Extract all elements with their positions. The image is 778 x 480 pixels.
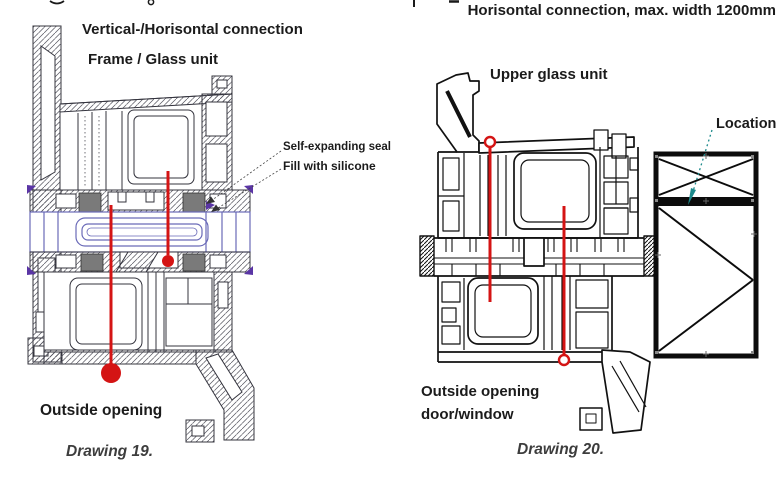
seal-block-bottom-left (81, 254, 103, 271)
clipped-text-fragments (50, 0, 459, 7)
outside-opening-door-label-line1: Outside opening (421, 384, 539, 400)
drawing20-caption: Drawing 20. (517, 442, 604, 458)
seal-block-bottom-right (183, 254, 205, 271)
band-end-cap-left (420, 236, 434, 276)
red-circle-bottom (559, 355, 569, 365)
outside-opening-label: Outside opening (40, 403, 162, 419)
red-circle-top (485, 137, 495, 147)
outside-opening-door-label-line2: door/window (421, 407, 513, 423)
frame-glass-label: Frame / Glass unit (88, 52, 218, 68)
upper-glass-label: Upper glass unit (490, 67, 608, 83)
page-canvas: Horisontal connection, max. width 1200mm… (0, 0, 778, 480)
seal-block-top-left (79, 193, 101, 212)
glass-unit-band (30, 212, 250, 252)
drawing-20-section (420, 73, 658, 433)
drawing19-caption: Drawing 19. (66, 444, 153, 460)
drawing19-title: Vertical-/Horisontal connection (82, 22, 303, 38)
seal-label: Self-expanding seal (283, 141, 391, 153)
red-dot-small (162, 255, 174, 267)
silicone-label: Fill with silicone (283, 160, 376, 173)
drawing-19-section (27, 26, 254, 442)
location-label: Location (716, 117, 776, 132)
right-title: Horisontal connection, max. width 1200mm (468, 3, 776, 19)
location-diagram (654, 130, 758, 357)
red-dot-large (101, 363, 121, 383)
seal-block-top-right (183, 193, 205, 212)
